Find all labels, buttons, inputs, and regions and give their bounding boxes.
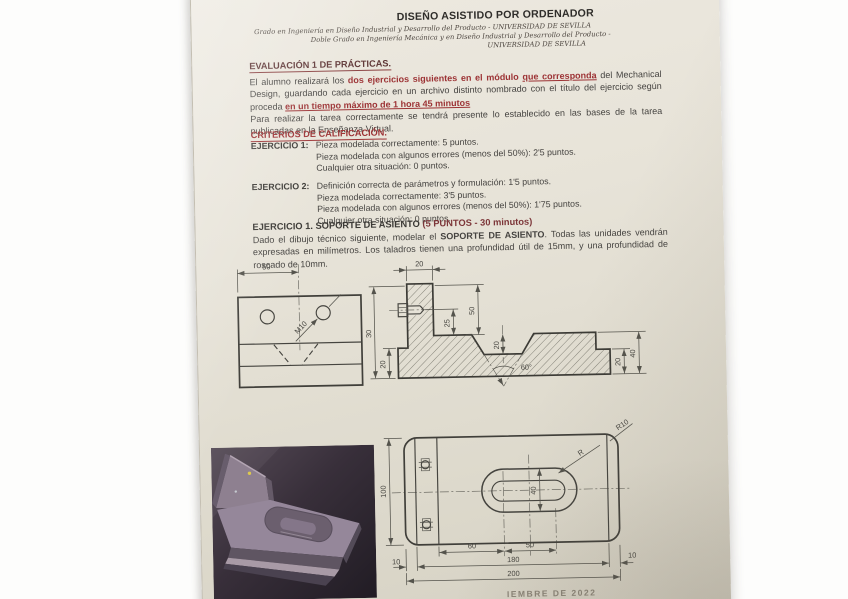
section-view-drawing: 20 30 20 50 25 20 60° 40 20: [360, 248, 673, 429]
dim-label-20-top: 20: [415, 259, 423, 268]
hidden-groove-lines: [274, 344, 318, 365]
exercise1-title-main: EJERCICIO 1. SOPORTE DE ASIENTO: [252, 219, 422, 232]
criteria-exercise1-lines: Pieza modelada correctamente: 5 puntos. …: [316, 135, 577, 175]
dim-label-100: 100: [379, 485, 388, 498]
exercise1-title-detail: (5 PUNTOS - 30 minutos): [422, 217, 532, 229]
plan-wall-edge: [437, 438, 439, 544]
front-view-edge-line: [239, 342, 362, 344]
threaded-hole-left: [260, 310, 274, 324]
dim-label-40-slot: 40: [529, 486, 538, 494]
dim-label-r10: R10: [614, 417, 630, 432]
intro-red-underlined-1: que corresponda: [522, 70, 596, 81]
intro-red-1: dos ejercicios siguientes en el módulo: [348, 72, 523, 86]
dim-label-60-degrees: 60°: [521, 363, 532, 372]
front-view-edge-line: [239, 364, 362, 366]
plan-view-drawing: 40 R R10 100 60 50 10 180 10 200: [378, 416, 662, 599]
dim-label-180: 180: [507, 555, 520, 564]
dim-label-25: 25: [442, 319, 451, 327]
intro-red-underlined-2: en un tiempo máximo de 1 hora 45 minutos: [285, 97, 470, 111]
dim-label-20-groove: 20: [492, 341, 501, 349]
dim-label-30-left: 30: [364, 330, 373, 338]
dim-label-60: 60: [468, 541, 476, 550]
evaluation-heading-text: EVALUACIÓN 1 DE PRÁCTICAS.: [249, 58, 391, 72]
plan-outline: [404, 434, 620, 545]
paper-sheet: DISEÑO ASISTIDO POR ORDENADOR Grado en I…: [190, 0, 731, 599]
dim-label-10-right: 10: [628, 551, 636, 560]
dim-label-20-right: 20: [613, 358, 622, 366]
dim-label-40-right: 40: [628, 349, 637, 357]
part-render-photo: [211, 445, 377, 599]
front-view-outline: [238, 295, 363, 387]
plan-thread-hole-top: [419, 459, 432, 471]
criteria-exercise1-label: EJERCICIO 1:: [251, 140, 317, 176]
criteria-exercise1: EJERCICIO 1: Pieza modelada correctament…: [251, 132, 692, 176]
plan-step-edge-left: [415, 438, 417, 544]
dim-label-10-left: 10: [392, 557, 400, 566]
page-background: DISEÑO ASISTIDO POR ORDENADOR Grado en I…: [0, 0, 848, 599]
plan-step-edge-right: [607, 435, 609, 541]
dim-label-200: 200: [507, 569, 520, 578]
dim-label-20-left: 20: [378, 360, 387, 368]
dim-label-50: 50: [467, 307, 476, 315]
intro-paragraph: El alumno realizará los dos ejercicios s…: [249, 68, 662, 138]
threaded-hole-right: [316, 306, 330, 320]
intro-black-1: El alumno realizará los: [249, 75, 347, 87]
front-view-dimension-lines: [237, 268, 298, 292]
dim-label-50: 50: [262, 262, 270, 271]
plan-thread-hole-bottom: [420, 519, 433, 531]
thread-label-m10: M10: [293, 319, 309, 336]
dim-label-50-slot: 50: [526, 540, 534, 549]
exercise1-body-bold: SOPORTE DE ASIENTO: [440, 229, 544, 241]
section-profile: [397, 280, 611, 378]
evaluation-heading: EVALUACIÓN 1 DE PRÁCTICAS.: [249, 58, 391, 71]
